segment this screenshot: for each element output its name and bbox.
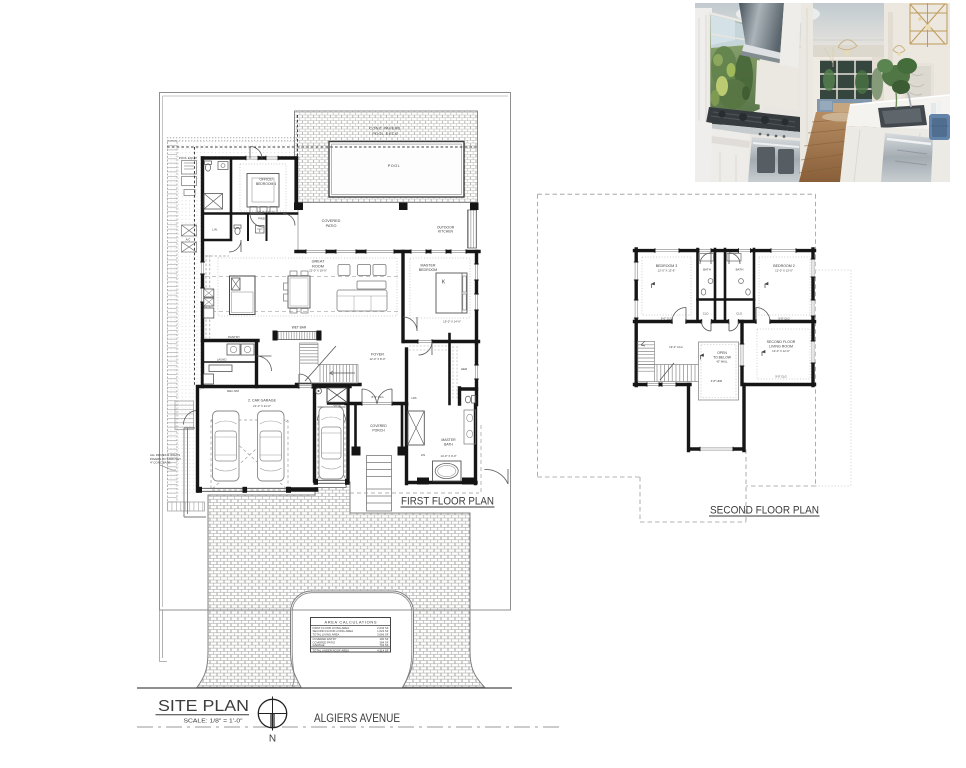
svg-text:CLO.: CLO. [736, 312, 743, 316]
svg-text:FOYER: FOYER [371, 353, 384, 357]
svg-text:21′-0″ X 21′-0″: 21′-0″ X 21′-0″ [253, 404, 271, 408]
svg-text:AREA CALCULATIONS: AREA CALCULATIONS [325, 620, 377, 625]
svg-text:4,314 SF: 4,314 SF [377, 648, 389, 652]
svg-text:SECOND FLOOR: SECOND FLOOR [767, 340, 796, 344]
svg-text:TOTAL UNDER ROOF AREA: TOTAL UNDER ROOF AREA [313, 648, 350, 652]
svg-text:SECOND FLOOR PLAN: SECOND FLOOR PLAN [710, 505, 819, 517]
svg-text:WET BAR: WET BAR [292, 326, 307, 330]
svg-text:19′-4″ CLG: 19′-4″ CLG [669, 345, 683, 349]
svg-text:MASTER: MASTER [421, 264, 436, 268]
svg-text:PORCH: PORCH [372, 428, 385, 432]
svg-text:CONC PAVERS: CONC PAVERS [369, 127, 401, 131]
svg-text:BEDROOM 2: BEDROOM 2 [773, 264, 795, 268]
svg-text:BEDROOM 4: BEDROOM 4 [256, 182, 276, 186]
svg-text:PWD.: PWD. [258, 217, 266, 221]
svg-text:2. CAR GARAGE: 2. CAR GARAGE [248, 399, 277, 403]
svg-text:OPEN: OPEN [717, 351, 727, 355]
svg-text:12′-0″ X 11′-0″: 12′-0″ X 11′-0″ [257, 210, 274, 214]
svg-text:POOL DECK: POOL DECK [372, 132, 398, 136]
svg-text:BEDROOM 3: BEDROOM 3 [656, 264, 678, 268]
svg-text:KITCHEN: KITCHEN [438, 230, 453, 234]
svg-text:N: N [269, 734, 276, 745]
svg-text:FIRST FLOOR PLAN: FIRST FLOOR PLAN [401, 496, 494, 508]
svg-text:4″ CONC BASE: 4″ CONC BASE [150, 461, 171, 465]
svg-text:SCALE: 1/8″ = 1′-0″: SCALE: 1/8″ = 1′-0″ [184, 719, 243, 725]
svg-text:TO BELOW: TO BELOW [713, 355, 732, 359]
svg-text:REC RM: REC RM [227, 389, 239, 393]
svg-text:CLO.: CLO. [703, 312, 710, 316]
svg-text:42″ WALL: 42″ WALL [716, 359, 728, 363]
svg-text:PATIO: PATIO [326, 224, 337, 228]
svg-text:14′-0″ X 9′-0″: 14′-0″ X 9′-0″ [440, 454, 456, 458]
svg-text:704 SF: 704 SF [379, 643, 388, 647]
svg-text:GREAT: GREAT [312, 260, 325, 264]
svg-text:9′-0″ CLG: 9′-0″ CLG [661, 317, 672, 321]
svg-text:LIN.: LIN. [212, 228, 218, 232]
svg-text:COVERED: COVERED [322, 219, 341, 223]
svg-text:22′-0″ X 19′-0″: 22′-0″ X 19′-0″ [309, 269, 327, 273]
svg-text:BATH: BATH [444, 442, 453, 446]
svg-text:9′-0″ CLG: 9′-0″ CLG [775, 375, 786, 379]
svg-text:6′-8″ HDR: 6′-8″ HDR [711, 379, 723, 383]
svg-text:K: K [442, 280, 446, 286]
svg-text:BATH: BATH [736, 268, 744, 272]
svg-text:POOL: POOL [388, 164, 401, 168]
svg-text:TOTAL LIVING AREA: TOTAL LIVING AREA [313, 632, 340, 636]
svg-text:LAUND.: LAUND. [217, 358, 227, 362]
svg-text:12′-0″ X 13′-6″: 12′-0″ X 13′-6″ [658, 268, 676, 272]
svg-text:A/C: A/C [186, 238, 191, 242]
svg-text:BEDROOM: BEDROOM [419, 268, 438, 272]
svg-text:8′-0″ CLG: 8′-0″ CLG [371, 395, 383, 399]
svg-text:HIS: HIS [411, 396, 416, 400]
svg-text:COVERED: COVERED [370, 424, 387, 428]
svg-text:3,066 SF: 3,066 SF [377, 632, 389, 636]
svg-text:GARAGE: GARAGE [313, 643, 325, 647]
svg-text:15′-0″ X 14′-0″: 15′-0″ X 14′-0″ [443, 320, 461, 324]
svg-text:9′-0″ CLG: 9′-0″ CLG [778, 317, 789, 321]
svg-text:12′-0″ X 13′-0″: 12′-0″ X 13′-0″ [775, 268, 793, 272]
svg-text:BATH: BATH [703, 268, 711, 272]
svg-text:SITE PLAN: SITE PLAN [158, 698, 249, 715]
svg-text:13′-0″ X 12′-0″: 13′-0″ X 12′-0″ [772, 349, 790, 353]
svg-text:12′-0″ X 8′-0″: 12′-0″ X 8′-0″ [369, 357, 385, 361]
svg-text:ALGIERS AVENUE: ALGIERS AVENUE [314, 713, 400, 725]
svg-text:LIN: LIN [421, 453, 425, 457]
svg-text:PANTRY: PANTRY [228, 335, 240, 339]
svg-text:HER: HER [461, 367, 468, 371]
